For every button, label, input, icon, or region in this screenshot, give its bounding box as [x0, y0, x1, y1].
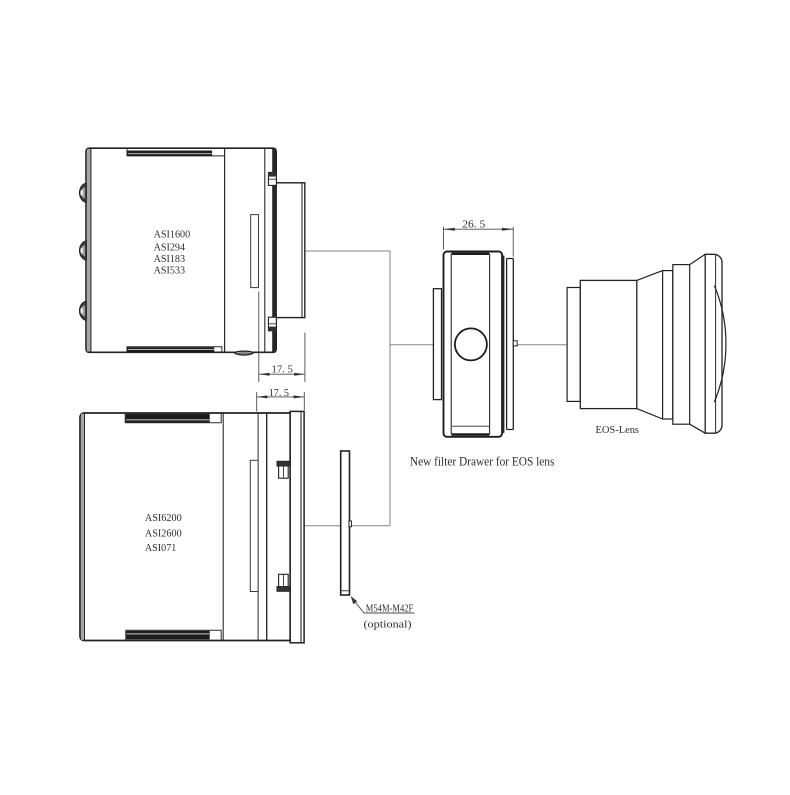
svg-text:ASI6200: ASI6200 [145, 513, 182, 524]
svg-text:M54M-M42F: M54M-M42F [366, 603, 414, 614]
svg-text:ASI183: ASI183 [154, 254, 185, 265]
svg-text:ASI071: ASI071 [145, 543, 176, 554]
svg-text:ASI533: ASI533 [154, 266, 185, 277]
svg-text:ASI2600: ASI2600 [145, 528, 182, 539]
svg-text:New filter Drawer for EOS lens: New filter Drawer for EOS lens [410, 454, 555, 468]
svg-text:17. 5: 17. 5 [272, 364, 293, 375]
svg-text:ASI294: ASI294 [154, 242, 186, 253]
svg-text:(optional): (optional) [364, 619, 413, 630]
svg-text:26. 5: 26. 5 [462, 220, 485, 231]
svg-text:EOS-Lens: EOS-Lens [596, 424, 640, 436]
svg-text:ASI1600: ASI1600 [154, 230, 191, 241]
svg-text:17. 5: 17. 5 [269, 388, 289, 399]
